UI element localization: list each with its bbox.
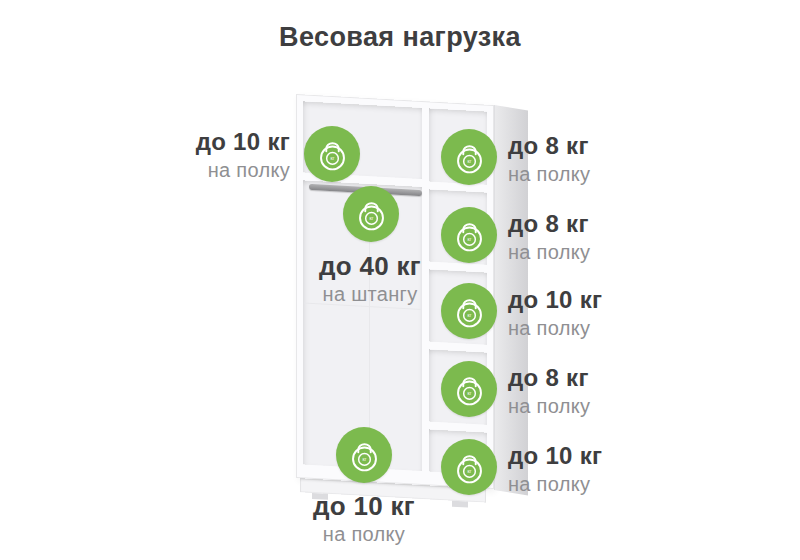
weight-target: на полку xyxy=(508,239,590,266)
kettlebell-label: кг xyxy=(467,469,471,474)
label-right-shelf-1: до 8 кг на полку xyxy=(508,131,590,188)
kettlebell-label: кг xyxy=(362,457,366,462)
kettlebell-icon: кг xyxy=(354,197,389,232)
kettlebell-label: кг xyxy=(369,216,373,221)
page-title: Весовая нагрузка xyxy=(0,22,800,53)
label-right-shelf-5: до 10 кг на полку xyxy=(508,441,602,498)
weight-target: на полку xyxy=(508,471,602,498)
kettlebell-label: кг xyxy=(467,313,471,318)
weight-value: до 10 кг xyxy=(280,491,448,521)
weight-load-infographic: Весовая нагрузка кг кг xyxy=(0,0,800,560)
weight-value: до 8 кг xyxy=(508,131,590,161)
label-left-shelf: до 10 кг на полку xyxy=(196,127,290,184)
label-right-shelf-4: до 8 кг на полку xyxy=(508,363,590,420)
kettlebell-icon: кг xyxy=(452,294,487,329)
weight-badge-left-shelf: кг xyxy=(304,126,360,182)
weight-target: на штангу xyxy=(286,281,454,308)
weight-badge-right-4: кг xyxy=(441,361,497,417)
weight-badge-right-5: кг xyxy=(441,439,497,495)
kettlebell-label: кг xyxy=(330,156,334,161)
weight-value: до 40 кг xyxy=(286,251,454,281)
kettlebell-icon: кг xyxy=(452,140,487,175)
kettlebell-icon: кг xyxy=(347,438,382,473)
weight-badge-rod: кг xyxy=(343,186,399,242)
kettlebell-label: кг xyxy=(467,237,471,242)
weight-value: до 10 кг xyxy=(196,127,290,157)
weight-value: до 10 кг xyxy=(508,441,602,471)
weight-target: на полку xyxy=(508,161,590,188)
label-bottom-shelf: до 10 кг на полку xyxy=(280,491,448,548)
kettlebell-label: кг xyxy=(467,159,471,164)
weight-target: на полку xyxy=(280,521,448,548)
kettlebell-icon: кг xyxy=(315,137,350,172)
weight-target: на полку xyxy=(508,393,590,420)
kettlebell-icon: кг xyxy=(452,450,487,485)
label-rod: до 40 кг на штангу xyxy=(286,251,454,308)
label-right-shelf-3: до 10 кг на полку xyxy=(508,285,602,342)
weight-value: до 8 кг xyxy=(508,363,590,393)
weight-target: на полку xyxy=(508,315,602,342)
cabinet-foot xyxy=(452,501,468,508)
kettlebell-label: кг xyxy=(467,391,471,396)
label-right-shelf-2: до 8 кг на полку xyxy=(508,209,590,266)
weight-badge-right-1: кг xyxy=(441,129,497,185)
weight-target: на полку xyxy=(196,157,290,184)
weight-value: до 10 кг xyxy=(508,285,602,315)
kettlebell-icon: кг xyxy=(452,372,487,407)
weight-value: до 8 кг xyxy=(508,209,590,239)
kettlebell-icon: кг xyxy=(452,218,487,253)
weight-badge-bottom-shelf: кг xyxy=(336,427,392,483)
